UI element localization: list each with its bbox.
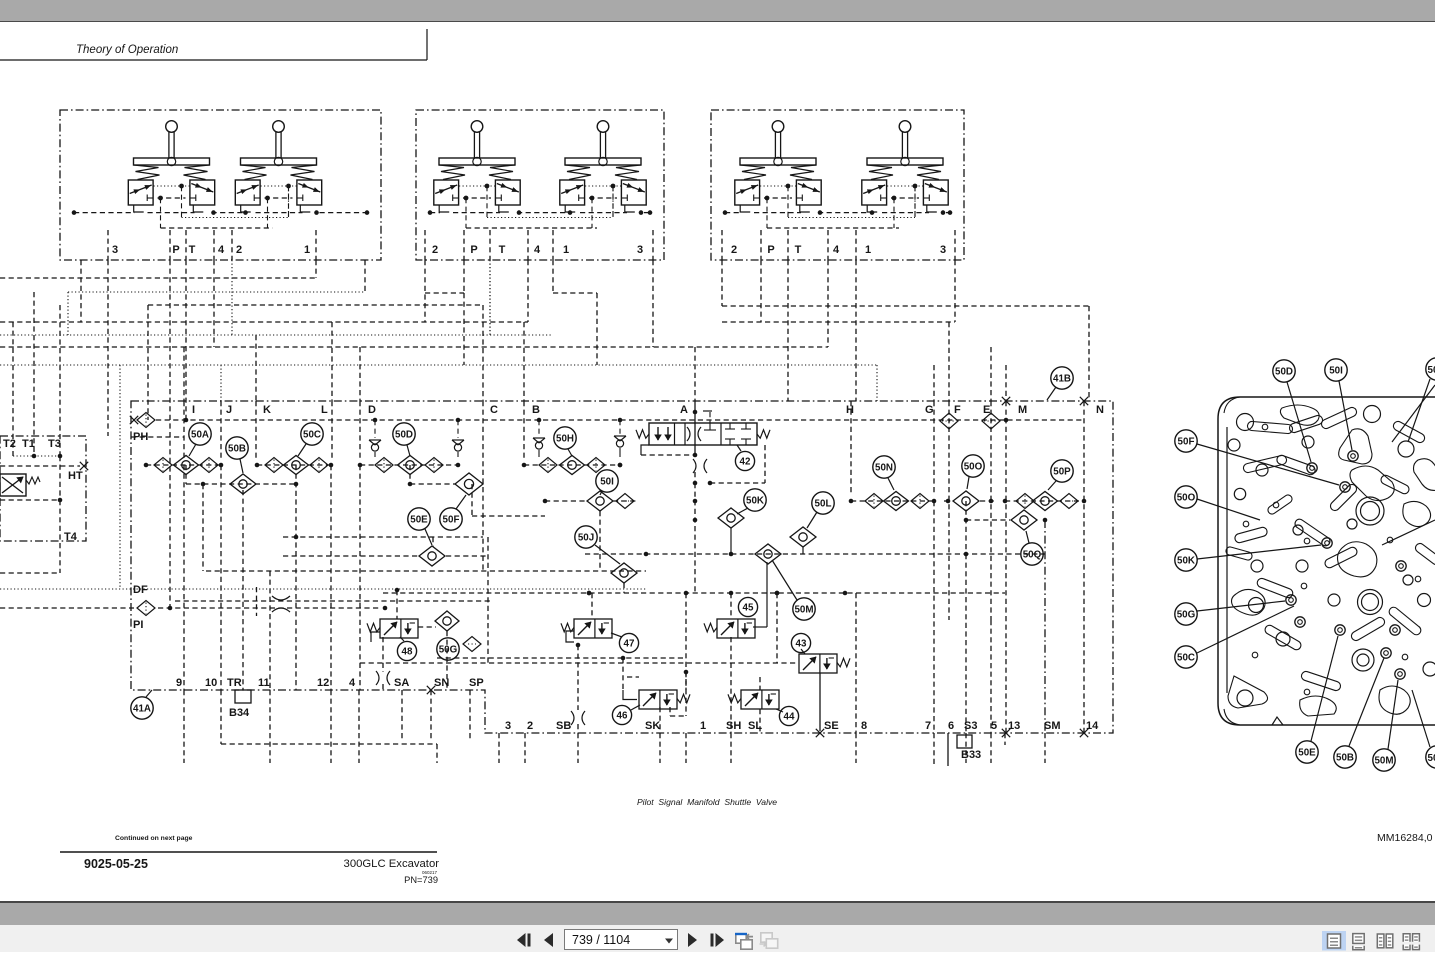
svg-text:7: 7: [925, 720, 931, 732]
svg-text:50N: 50N: [875, 463, 893, 474]
svg-text:I: I: [192, 404, 195, 416]
svg-text:50D: 50D: [1275, 367, 1293, 378]
svg-text:1: 1: [865, 244, 871, 256]
svg-text:3: 3: [637, 244, 643, 256]
svg-text:SA: SA: [394, 677, 409, 689]
svg-text:1: 1: [563, 244, 569, 256]
svg-text:50O: 50O: [1177, 493, 1196, 504]
svg-text:10: 10: [205, 677, 217, 689]
svg-text:PI: PI: [133, 619, 143, 631]
svg-text:PN=739: PN=739: [404, 875, 438, 885]
svg-text:3: 3: [505, 720, 511, 732]
svg-text:50D: 50D: [395, 430, 413, 441]
svg-text:T3: T3: [48, 438, 61, 450]
svg-text:T1: T1: [22, 438, 35, 450]
svg-text:2: 2: [432, 244, 438, 256]
svg-text:P: P: [172, 244, 179, 256]
svg-text:1: 1: [304, 244, 310, 256]
svg-text:50E: 50E: [1298, 748, 1316, 759]
svg-text:K: K: [263, 404, 271, 416]
svg-text:11: 11: [258, 677, 270, 689]
svg-text:48: 48: [402, 647, 413, 658]
svg-text:50K: 50K: [1177, 556, 1195, 567]
svg-text:50I: 50I: [600, 477, 614, 488]
svg-text:SH: SH: [726, 720, 741, 732]
svg-text:50G: 50G: [439, 645, 458, 656]
svg-text:13: 13: [1008, 720, 1020, 732]
svg-text:TR: TR: [227, 677, 242, 689]
svg-text:4: 4: [833, 244, 840, 256]
svg-text:50I: 50I: [1329, 366, 1343, 377]
svg-text:50A: 50A: [191, 430, 209, 441]
svg-text:50H: 50H: [556, 434, 574, 445]
svg-text:50J: 50J: [578, 533, 594, 544]
svg-text:B34: B34: [229, 707, 250, 719]
svg-text:SM: SM: [1044, 720, 1061, 732]
svg-text:HT: HT: [68, 470, 83, 482]
svg-text:SB: SB: [556, 720, 571, 732]
svg-text:G: G: [925, 404, 934, 416]
svg-text:44: 44: [784, 712, 795, 723]
svg-text:300GLC Excavator: 300GLC Excavator: [344, 858, 440, 870]
svg-text:50B: 50B: [1336, 753, 1354, 764]
svg-text:47: 47: [624, 639, 635, 650]
svg-text:Continued on next page: Continued on next page: [115, 835, 193, 842]
svg-text:SK: SK: [645, 720, 660, 732]
svg-text:50G: 50G: [1177, 610, 1196, 621]
svg-text:50K: 50K: [746, 496, 764, 507]
svg-text:B33: B33: [961, 749, 981, 761]
svg-text:T: T: [189, 244, 196, 256]
svg-text:50B: 50B: [228, 444, 246, 455]
svg-text:43: 43: [796, 639, 807, 650]
svg-text:T2: T2: [3, 438, 16, 450]
svg-text:4: 4: [218, 244, 225, 256]
svg-text:50C: 50C: [1177, 653, 1195, 664]
svg-text:SP: SP: [469, 677, 484, 689]
svg-text:P: P: [470, 244, 477, 256]
svg-text:9025-05-25: 9025-05-25: [84, 857, 148, 871]
svg-text:50F: 50F: [1178, 437, 1195, 448]
svg-text:50E: 50E: [410, 515, 428, 526]
svg-text:DF: DF: [133, 584, 148, 596]
svg-text:41B: 41B: [1053, 374, 1071, 385]
svg-text:50Q: 50Q: [1023, 550, 1042, 561]
svg-text:D: D: [368, 404, 376, 416]
svg-text:B: B: [532, 404, 540, 416]
svg-text:45: 45: [743, 603, 754, 614]
svg-text:J: J: [226, 404, 232, 416]
svg-text:T4: T4: [64, 531, 78, 543]
svg-text:12: 12: [317, 677, 329, 689]
svg-text:3: 3: [940, 244, 946, 256]
svg-text:1: 1: [700, 720, 706, 732]
svg-text:50F: 50F: [443, 515, 460, 526]
svg-text:50M: 50M: [1374, 756, 1393, 767]
svg-text:4: 4: [534, 244, 541, 256]
svg-text:50P: 50P: [1053, 467, 1071, 478]
svg-text:5: 5: [991, 720, 997, 732]
svg-text:2: 2: [731, 244, 737, 256]
svg-text:50O: 50O: [964, 462, 983, 473]
svg-text:14: 14: [1086, 720, 1099, 732]
svg-text:T: T: [499, 244, 506, 256]
svg-text:50M: 50M: [794, 605, 813, 616]
svg-text:P: P: [767, 244, 774, 256]
svg-text:6: 6: [948, 720, 954, 732]
svg-text:9: 9: [176, 677, 182, 689]
svg-text:N: N: [1096, 404, 1104, 416]
svg-text:MM16284,0: MM16284,0: [1377, 832, 1433, 844]
svg-text:50: 50: [1428, 365, 1435, 376]
svg-text:SE: SE: [824, 720, 839, 732]
svg-text:M: M: [1018, 404, 1027, 416]
svg-text:H: H: [846, 404, 854, 416]
svg-text:46: 46: [617, 711, 628, 722]
svg-text:739 / 1104: 739 / 1104: [572, 933, 630, 947]
svg-text:Theory of Operation: Theory of Operation: [76, 44, 178, 56]
svg-text:3: 3: [112, 244, 118, 256]
svg-text:F: F: [954, 404, 961, 416]
svg-text:2: 2: [236, 244, 242, 256]
svg-text:50C: 50C: [303, 430, 321, 441]
svg-text:42: 42: [740, 457, 751, 468]
svg-text:C: C: [490, 404, 498, 416]
svg-text:2: 2: [527, 720, 533, 732]
svg-text:8: 8: [861, 720, 867, 732]
svg-text:L: L: [321, 404, 328, 416]
svg-text:50: 50: [1428, 753, 1435, 764]
svg-text:50L: 50L: [815, 499, 832, 510]
svg-text:4: 4: [349, 677, 356, 689]
svg-text:Pilot Signal Manifold Shutt: Pilot Signal Manifold Shuttle Valve: [637, 797, 777, 807]
svg-text:A: A: [680, 404, 688, 416]
svg-text:41A: 41A: [133, 704, 151, 715]
svg-text:T: T: [795, 244, 802, 256]
